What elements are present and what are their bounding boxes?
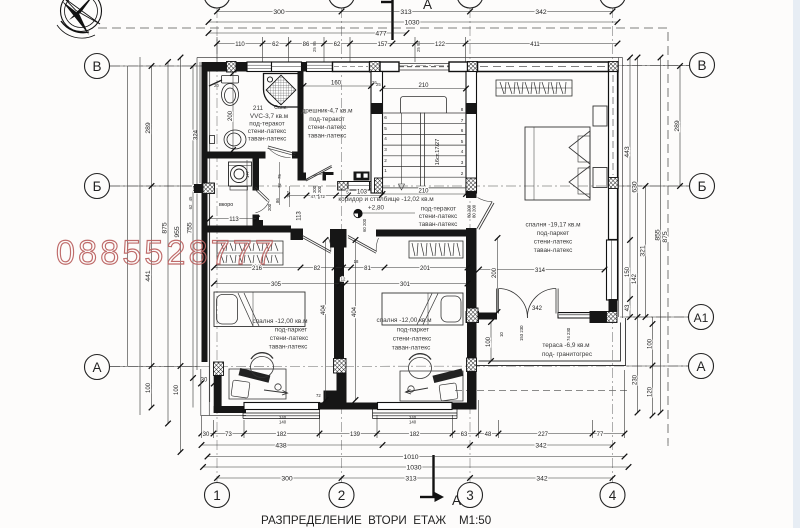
svg-text:140: 140 — [409, 420, 417, 425]
svg-text:3: 3 — [461, 160, 464, 165]
svg-text:77: 77 — [597, 432, 604, 438]
svg-text:855: 855 — [655, 229, 662, 241]
svg-text:спалня -12,00 кв.м: спалня -12,00 кв.м — [253, 318, 308, 325]
svg-text:+2,80: +2,80 — [368, 205, 385, 212]
svg-text:157: 157 — [377, 42, 388, 48]
svg-text:47: 47 — [311, 194, 316, 199]
svg-text:142: 142 — [632, 273, 638, 284]
svg-text:спалня -12,00 кв.м: спалня -12,00 кв.м — [377, 317, 432, 324]
svg-text:300: 300 — [273, 9, 285, 16]
svg-text:25 93: 25 93 — [416, 41, 421, 52]
svg-text:120: 120 — [648, 386, 654, 397]
svg-text:48: 48 — [485, 432, 492, 438]
svg-text:200: 200 — [267, 203, 272, 211]
svg-text:289: 289 — [145, 122, 152, 134]
svg-text:182: 182 — [276, 432, 287, 438]
svg-text:5: 5 — [384, 126, 387, 131]
svg-text:72: 72 — [320, 194, 325, 199]
svg-text:вкоро: вкоро — [219, 202, 233, 208]
svg-text:4: 4 — [384, 136, 387, 141]
svg-text:стени-латекс: стени-латекс — [419, 213, 458, 220]
svg-text:200: 200 — [228, 110, 234, 121]
svg-text:В: В — [92, 59, 101, 74]
svg-text:16ст.17/27: 16ст.17/27 — [435, 139, 441, 166]
svg-text:VVC-3,7 кв.м: VVC-3,7 кв.м — [250, 113, 288, 120]
svg-text:438: 438 — [275, 443, 287, 450]
svg-text:74 230: 74 230 — [566, 327, 571, 341]
svg-text:стени-латекс: стени-латекс — [270, 335, 309, 342]
svg-text:1010: 1010 — [403, 454, 418, 461]
svg-text:210: 210 — [418, 83, 429, 89]
svg-text:коридор и стълбище -12,02 кв.м: коридор и стълбище -12,02 кв.м — [338, 195, 433, 203]
svg-text:таван-латекс: таван-латекс — [269, 344, 308, 351]
svg-text:82: 82 — [314, 266, 321, 272]
svg-text:875: 875 — [162, 222, 169, 234]
svg-text:100: 100 — [486, 336, 492, 347]
svg-text:211: 211 — [253, 105, 264, 112]
svg-text:110: 110 — [235, 42, 245, 48]
svg-text:86: 86 — [303, 42, 310, 48]
svg-text:200: 200 — [492, 267, 498, 278]
svg-text:313: 313 — [405, 476, 417, 483]
svg-text:314: 314 — [535, 268, 546, 274]
svg-text:342: 342 — [532, 306, 543, 312]
svg-text:А: А — [696, 359, 705, 374]
svg-text:6: 6 — [384, 115, 387, 120]
svg-text:0885528777: 0885528777 — [56, 234, 277, 272]
svg-text:1: 1 — [384, 168, 387, 173]
svg-text:122: 122 — [435, 42, 446, 48]
svg-text:81: 81 — [364, 266, 371, 272]
svg-text:18: 18 — [354, 259, 359, 264]
svg-text:477: 477 — [375, 31, 387, 38]
svg-text:таван-латекс: таван-латекс — [392, 345, 431, 352]
svg-text:А: А — [423, 0, 432, 12]
svg-text:324: 324 — [194, 129, 200, 140]
svg-text:300: 300 — [281, 476, 293, 483]
svg-text:стени-латекс: стени-латекс — [534, 239, 573, 246]
svg-text:113: 113 — [297, 211, 303, 221]
svg-text:342: 342 — [535, 443, 547, 450]
svg-text:153 230: 153 230 — [519, 325, 524, 341]
svg-text:62: 62 — [272, 42, 279, 48]
svg-text:100: 100 — [146, 382, 152, 393]
svg-text:таван-латекс: таван-латекс — [308, 133, 347, 140]
svg-text:30: 30 — [203, 432, 210, 438]
svg-text:160: 160 — [331, 81, 342, 87]
svg-text:Б: Б — [93, 179, 102, 194]
svg-text:под-теракот: под-теракот — [309, 116, 345, 123]
svg-text:25: 25 — [376, 82, 381, 87]
svg-text:25 95: 25 95 — [312, 41, 317, 52]
svg-text:7: 7 — [461, 118, 464, 123]
svg-text:8: 8 — [461, 107, 464, 112]
svg-text:стени-латекс: стени-латекс — [393, 336, 432, 343]
svg-text:6: 6 — [461, 128, 464, 133]
svg-text:под-паркет: под-паркет — [397, 327, 430, 334]
svg-text:63: 63 — [461, 432, 468, 438]
svg-text:дрешник-4,7 кв.м: дрешник-4,7 кв.м — [301, 108, 352, 115]
svg-text:227: 227 — [538, 432, 549, 438]
svg-text:289: 289 — [674, 120, 681, 132]
svg-text:под-теракот: под-теракот — [249, 121, 285, 128]
svg-text:20: 20 — [214, 83, 219, 88]
svg-text:342: 342 — [536, 476, 548, 483]
svg-text:411: 411 — [530, 42, 540, 48]
svg-text:под- гранитогрес: под- гранитогрес — [542, 351, 593, 358]
svg-text:321: 321 — [640, 245, 647, 257]
svg-text:А: А — [92, 360, 101, 375]
svg-text:спалня -19,17 кв.м: спалня -19,17 кв.м — [526, 222, 581, 229]
svg-text:73: 73 — [225, 432, 232, 438]
svg-text:113: 113 — [229, 217, 239, 223]
svg-text:875: 875 — [662, 231, 669, 243]
svg-text:230: 230 — [633, 374, 639, 385]
svg-text:443: 443 — [624, 146, 631, 158]
svg-text:3: 3 — [466, 488, 474, 503]
svg-text:таван-латекс: таван-латекс — [534, 247, 573, 254]
svg-text:60 200: 60 200 — [362, 218, 367, 232]
svg-text:80 200: 80 200 — [472, 204, 477, 218]
svg-text:3: 3 — [384, 147, 387, 152]
svg-text:305: 305 — [271, 282, 282, 288]
svg-text:103: 103 — [357, 190, 368, 196]
svg-text:62: 62 — [188, 204, 193, 209]
svg-text:5: 5 — [461, 139, 464, 144]
svg-text:под-паркет: под-паркет — [537, 230, 570, 237]
svg-text:201: 201 — [420, 266, 431, 272]
svg-text:таван-латекс: таван-латекс — [248, 136, 287, 143]
svg-text:342: 342 — [535, 9, 547, 16]
svg-text:139: 139 — [350, 432, 361, 438]
svg-text:100: 100 — [648, 338, 654, 349]
svg-text:таван-латекс: таван-латекс — [419, 221, 458, 228]
svg-text:4: 4 — [461, 149, 464, 154]
svg-text:26: 26 — [372, 80, 377, 85]
svg-text:под-теракот: под-теракот — [421, 206, 457, 213]
svg-text:2: 2 — [384, 158, 387, 163]
svg-text:Б: Б — [698, 179, 707, 194]
svg-text:А: А — [452, 493, 461, 508]
svg-text:630: 630 — [632, 181, 639, 193]
svg-text:100: 100 — [174, 384, 180, 395]
svg-text:10: 10 — [499, 332, 504, 337]
svg-text:404: 404 — [352, 306, 358, 317]
svg-text:1030: 1030 — [404, 20, 419, 27]
svg-text:4: 4 — [609, 488, 617, 503]
svg-text:313: 313 — [400, 9, 412, 16]
svg-text:140: 140 — [279, 420, 287, 425]
svg-text:стени-латекс: стени-латекс — [308, 124, 347, 131]
svg-text:404: 404 — [321, 304, 327, 315]
svg-text:177: 177 — [245, 170, 250, 178]
svg-text:В: В — [697, 58, 706, 73]
svg-text:182: 182 — [409, 432, 420, 438]
svg-text:1030: 1030 — [406, 465, 421, 472]
svg-text:РАЗПРЕДЕЛЕНИЕ ВТОРИ ЕТАЖ: РАЗПРЕДЕЛЕНИЕ ВТОРИ ЕТАЖ М1:50 — [261, 514, 491, 527]
svg-text:2: 2 — [338, 488, 346, 503]
svg-text:301: 301 — [400, 282, 411, 288]
svg-text:62: 62 — [334, 42, 341, 48]
svg-text:150: 150 — [625, 266, 631, 277]
svg-text:Сани.: Сани. — [274, 105, 287, 111]
svg-text:755: 755 — [187, 222, 194, 234]
svg-text:45: 45 — [188, 196, 193, 201]
svg-text:12: 12 — [341, 277, 346, 282]
svg-text:стени-латекс: стени-латекс — [248, 128, 287, 135]
svg-text:43: 43 — [625, 304, 631, 311]
svg-text:тераса -6,9 кв.м: тераса -6,9 кв.м — [542, 342, 589, 349]
svg-text:2: 2 — [461, 171, 464, 176]
svg-text:210: 210 — [418, 189, 429, 195]
svg-text:А1: А1 — [694, 311, 709, 325]
svg-text:72: 72 — [316, 393, 321, 398]
svg-text:под-паркет: под-паркет — [275, 327, 308, 334]
svg-text:1: 1 — [213, 488, 221, 503]
